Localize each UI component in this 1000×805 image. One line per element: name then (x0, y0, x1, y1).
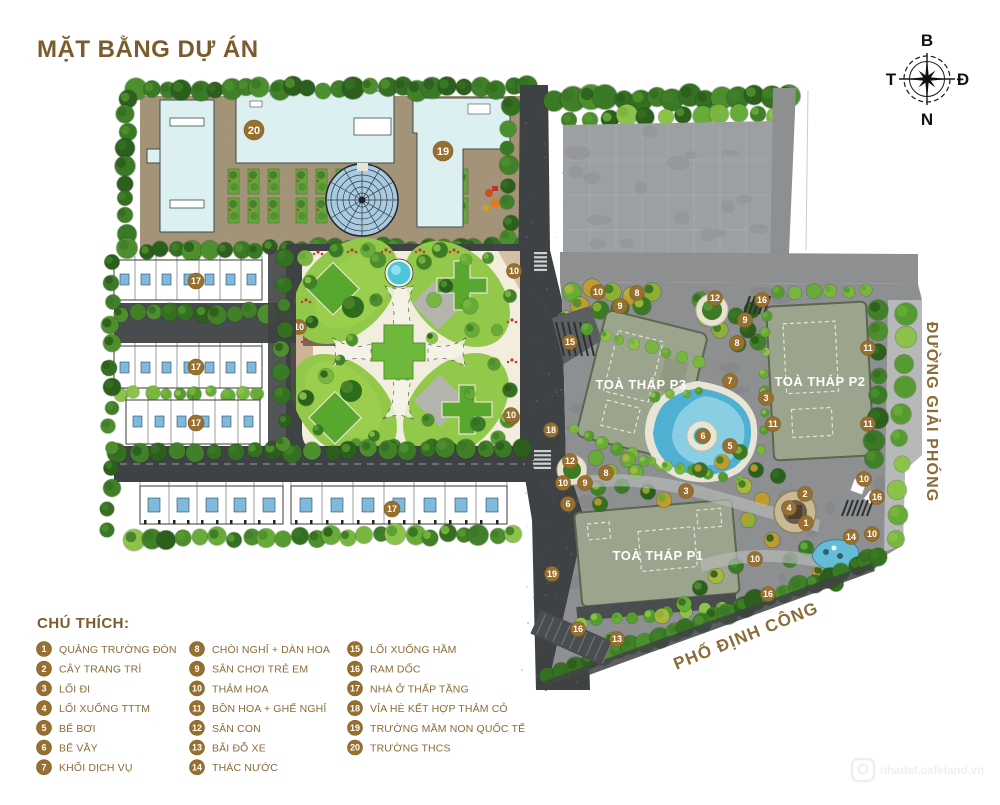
svg-text:17: 17 (350, 684, 360, 694)
svg-text:7: 7 (41, 762, 46, 772)
svg-text:BỂ BƠI: BỂ BƠI (59, 722, 96, 735)
svg-text:LỐI ĐI: LỐI ĐI (59, 681, 90, 695)
svg-text:16: 16 (350, 664, 360, 674)
svg-text:LỐI XUỐNG HẦM: LỐI XUỐNG HẦM (370, 642, 457, 656)
svg-text:10: 10 (558, 478, 568, 488)
svg-text:nhadat.cafeland.vn: nhadat.cafeland.vn (880, 765, 984, 777)
svg-text:10: 10 (867, 529, 877, 539)
svg-text:8: 8 (194, 644, 199, 654)
svg-text:12: 12 (565, 456, 575, 466)
svg-text:5: 5 (727, 441, 732, 451)
svg-text:T: T (886, 70, 897, 89)
svg-text:17: 17 (191, 418, 201, 428)
svg-text:LỐI XUỐNG TTTM: LỐI XUỐNG TTTM (59, 701, 150, 715)
svg-text:4: 4 (786, 503, 791, 513)
svg-text:CHÚ THÍCH:: CHÚ THÍCH: (37, 614, 130, 632)
svg-text:6: 6 (41, 743, 46, 753)
svg-text:1: 1 (41, 644, 46, 654)
svg-text:RAM DỐC: RAM DỐC (370, 662, 421, 676)
svg-text:17: 17 (387, 504, 397, 514)
svg-text:SÂN CHƠI TRẺ EM: SÂN CHƠI TRẺ EM (212, 663, 308, 676)
svg-text:13: 13 (192, 743, 202, 753)
svg-text:18: 18 (546, 425, 556, 435)
svg-text:TOÀ THÁP P3: TOÀ THÁP P3 (596, 377, 687, 392)
svg-text:19: 19 (547, 569, 557, 579)
svg-text:9: 9 (582, 478, 587, 488)
svg-text:11: 11 (192, 703, 202, 713)
svg-text:VỈA HÈ KẾT HỢP THẢM CỎ: VỈA HÈ KẾT HỢP THẢM CỎ (370, 702, 508, 715)
svg-text:2: 2 (41, 664, 46, 674)
svg-text:15: 15 (350, 644, 360, 654)
svg-text:19: 19 (437, 146, 449, 158)
svg-text:TRƯỜNG MẦM NON QUỐC TẾ: TRƯỜNG MẦM NON QUỐC TẾ (370, 721, 525, 735)
svg-text:MẶT BẰNG DỰ ÁN: MẶT BẰNG DỰ ÁN (37, 35, 259, 63)
svg-text:10: 10 (509, 266, 519, 276)
svg-text:4: 4 (41, 703, 46, 713)
svg-text:9: 9 (194, 664, 199, 674)
svg-text:10: 10 (593, 287, 603, 297)
svg-text:8: 8 (603, 468, 608, 478)
svg-text:16: 16 (763, 589, 773, 599)
svg-text:TOÀ THÁP P1: TOÀ THÁP P1 (613, 548, 704, 563)
svg-text:10: 10 (506, 410, 516, 420)
svg-text:16: 16 (757, 295, 767, 305)
svg-text:10: 10 (859, 474, 869, 484)
svg-text:11: 11 (863, 419, 873, 429)
svg-text:B: B (921, 31, 933, 50)
svg-text:10: 10 (750, 554, 760, 564)
svg-text:16: 16 (573, 624, 583, 634)
svg-text:14: 14 (846, 532, 856, 542)
svg-text:8: 8 (734, 338, 739, 348)
svg-text:6: 6 (565, 499, 570, 509)
svg-text:3: 3 (683, 486, 688, 496)
svg-text:BỂ VẦY: BỂ VẦY (59, 742, 98, 755)
svg-text:8: 8 (634, 288, 639, 298)
svg-text:QUẢNG TRƯỜNG ĐÓN: QUẢNG TRƯỜNG ĐÓN (59, 643, 177, 656)
svg-text:KHỐI DỊCH VỤ: KHỐI DỊCH VỤ (59, 760, 133, 774)
svg-text:6: 6 (700, 431, 705, 441)
svg-text:5: 5 (41, 723, 46, 733)
svg-text:15: 15 (565, 337, 575, 347)
svg-text:CÂY TRANG TRÍ: CÂY TRANG TRÍ (59, 663, 141, 676)
svg-text:BỒN HOA + GHẾ NGHỈ: BỒN HOA + GHẾ NGHỈ (212, 702, 326, 715)
svg-text:THÁC NƯỚC: THÁC NƯỚC (212, 761, 278, 774)
svg-text:ĐƯỜNG GIẢI PHÓNG: ĐƯỜNG GIẢI PHÓNG (923, 322, 942, 503)
svg-text:20: 20 (248, 125, 260, 137)
svg-text:18: 18 (350, 703, 360, 713)
svg-text:NHÀ Ở THẤP TẦNG: NHÀ Ở THẤP TẦNG (370, 682, 469, 695)
svg-text:3: 3 (41, 684, 46, 694)
svg-text:9: 9 (742, 315, 747, 325)
svg-text:11: 11 (768, 419, 778, 429)
svg-text:16: 16 (872, 492, 882, 502)
svg-text:10: 10 (192, 684, 202, 694)
svg-text:17: 17 (191, 276, 201, 286)
svg-text:THẢM HOA: THẢM HOA (212, 682, 269, 695)
svg-text:TRƯỜNG THCS: TRƯỜNG THCS (370, 742, 451, 755)
svg-text:SÂN CON: SÂN CON (212, 722, 261, 735)
svg-text:17: 17 (191, 362, 201, 372)
svg-text:13: 13 (612, 634, 622, 644)
svg-text:11: 11 (863, 343, 873, 353)
svg-text:12: 12 (710, 293, 720, 303)
svg-text:9: 9 (617, 301, 622, 311)
svg-text:12: 12 (192, 723, 202, 733)
svg-text:CHÒI NGHỈ + DÀN HOA: CHÒI NGHỈ + DÀN HOA (212, 643, 330, 656)
svg-text:Đ: Đ (957, 70, 969, 89)
svg-text:TOÀ THÁP P2: TOÀ THÁP P2 (775, 374, 866, 389)
svg-text:N: N (921, 110, 933, 129)
svg-text:14: 14 (192, 762, 202, 772)
svg-text:2: 2 (802, 489, 807, 499)
svg-text:7: 7 (727, 376, 732, 386)
svg-text:19: 19 (350, 723, 360, 733)
svg-text:BÃI ĐỖ XE: BÃI ĐỖ XE (212, 742, 266, 755)
svg-text:1: 1 (803, 518, 808, 528)
svg-text:20: 20 (350, 743, 360, 753)
svg-text:3: 3 (763, 393, 768, 403)
